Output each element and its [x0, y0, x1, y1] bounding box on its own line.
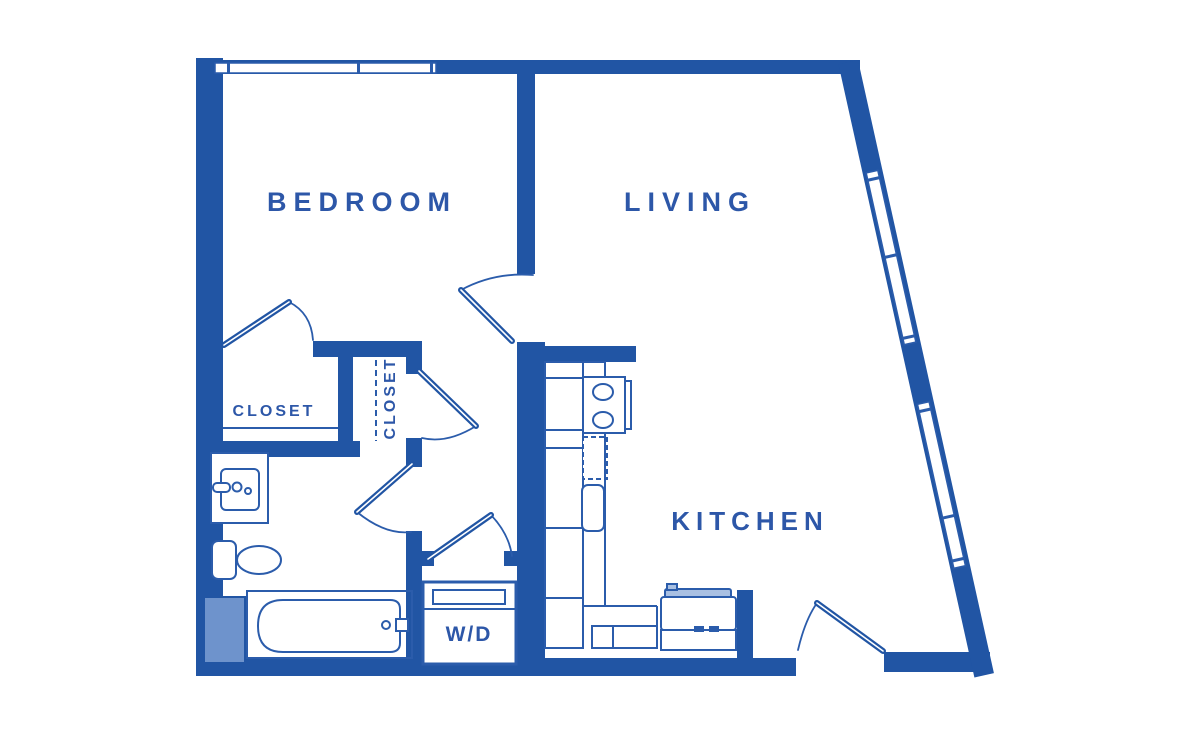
living-label: LIVING — [624, 187, 756, 217]
floor-plan-page: BEDROOM LIVING KITCHEN CLOSET CLOSET W/D — [0, 0, 1200, 750]
bedroom-top-window — [215, 63, 436, 73]
closet-left-door — [224, 302, 313, 345]
wall-bathroom-right-low — [406, 531, 422, 676]
wall-stub-kitchen-right — [737, 590, 753, 676]
bedroom-label: BEDROOM — [267, 187, 457, 217]
wall-closet-top — [313, 341, 422, 357]
living-slant-window-lower — [917, 402, 965, 569]
closet-right-label: CLOSET — [382, 357, 399, 440]
wall-stub-laundry-right — [504, 551, 517, 566]
bathroom-fixtures — [204, 453, 412, 663]
range-icon — [661, 584, 736, 650]
wall-kitchen-hall — [517, 342, 545, 664]
living-slant-window-upper — [866, 170, 916, 344]
wall-left — [196, 58, 223, 676]
kitchen-sink-icon — [583, 377, 631, 433]
entry-door — [798, 603, 883, 651]
laundry-label: W/D — [446, 623, 493, 646]
wall-kitchen-stub — [545, 346, 636, 362]
closet-left-label: CLOSET — [233, 403, 316, 420]
oven-icon — [582, 485, 604, 531]
bathroom-door — [357, 464, 412, 532]
kitchen-label: KITCHEN — [671, 506, 829, 536]
bathtub-icon — [247, 591, 412, 658]
laundry-door — [428, 515, 512, 559]
dishwasher-icon — [583, 437, 607, 479]
sink-icon — [211, 453, 268, 523]
wall-bedroom-living-divider — [517, 74, 535, 274]
wall-right-slanted — [838, 60, 993, 677]
floor-plan: BEDROOM LIVING KITCHEN CLOSET CLOSET W/D — [0, 0, 1200, 750]
toilet-icon — [212, 541, 281, 579]
closet-right-door — [419, 371, 476, 440]
wall-closet-divider — [338, 341, 353, 457]
shower-shelf — [204, 597, 245, 663]
bedroom-door — [461, 275, 533, 341]
